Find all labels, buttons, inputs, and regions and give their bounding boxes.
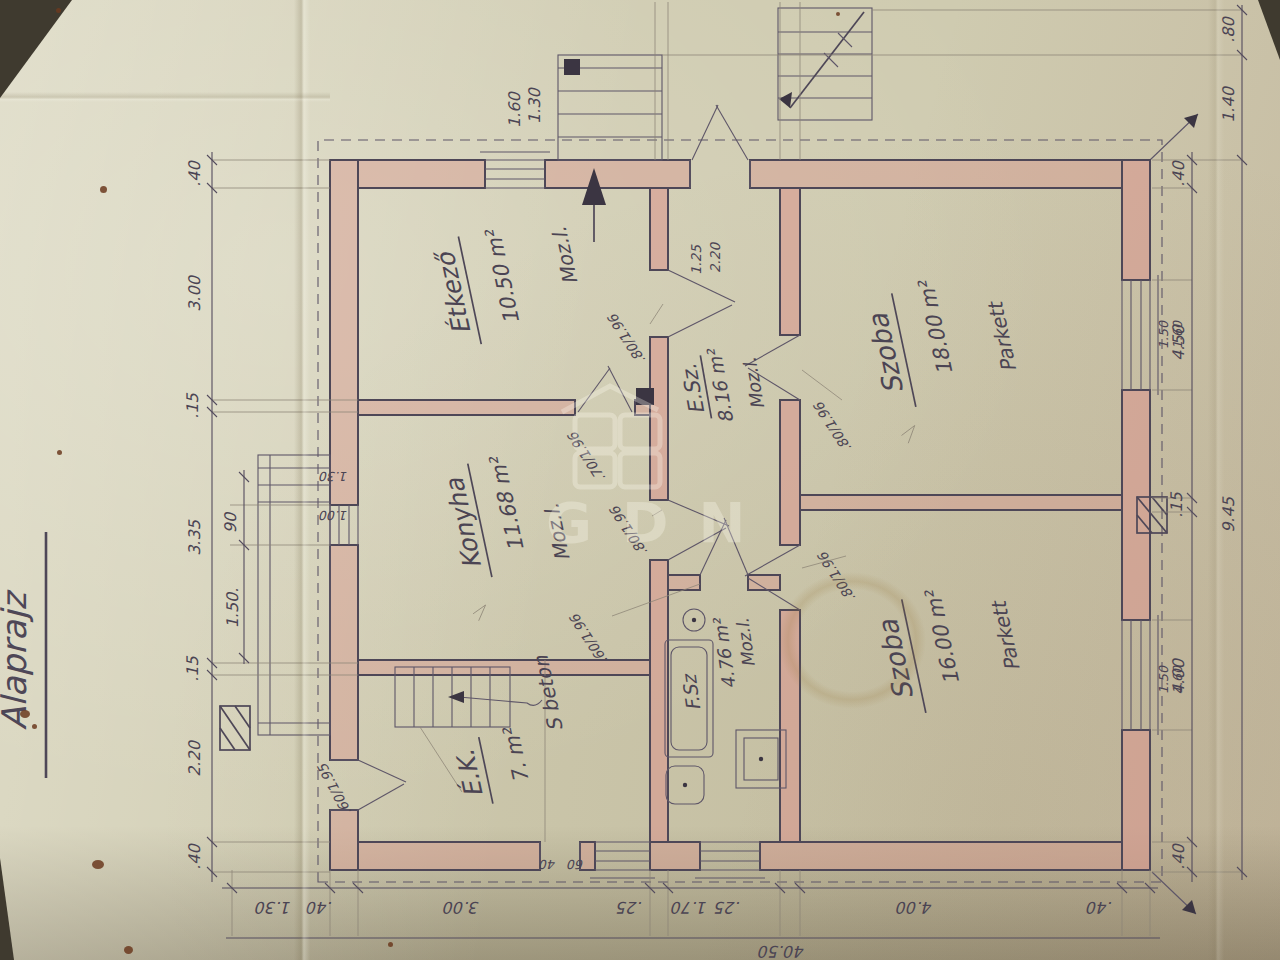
dim-label: 3.35 [185,519,204,555]
sheet-title: Alaprajz [0,532,46,778]
room-floor: Parkett [983,297,1022,374]
entry-steps-upper [558,55,662,242]
dim-label: 1.40 [1219,85,1238,122]
door-size: .80/1.96 [606,502,651,559]
room-name: Szoba [872,615,920,703]
room-area: 16.00 m² [920,586,964,687]
room-label-konyha: Konyha 11.68 m² Moz.l. [437,444,583,623]
page-title: Alaprajz [0,589,34,730]
room-label-szoba16: Szoba 16.00 m² Parkett [868,573,1030,720]
dim-bottom: .40 4.00 .15 4.50 .40 9.45 1.40 .80 1.50… [1156,5,1247,882]
dim-label: 4.00 [895,898,932,917]
vent-dim: 40 [539,857,556,872]
room-floor: Moz.l. [739,356,769,411]
room-label-etkezo: Étkező 10.50 m² Moz.l. [427,212,591,351]
room-floor: Moz.l. [539,502,575,564]
stain-speck [124,946,133,954]
room-name: Szoba [862,309,910,397]
room-label-fsz: F.Sz 4.76 m² Moz.l. [670,612,764,713]
dim-total-label: 40.50 [757,942,805,960]
room-area: 11.68 m² [485,453,529,554]
window-dim: 1.50 [1156,665,1171,694]
dim-label: 1.50. [223,588,242,629]
stain-speck [388,942,393,947]
room-area: 18.00 m² [914,276,958,377]
vent-dim: 60 [567,857,584,872]
stain-speck [32,724,37,729]
dim-label: .40 [305,898,332,917]
dim-label: 2.20 [185,739,204,776]
stain-speck [100,186,107,193]
room-floor: Moz.l. [547,225,583,287]
room-area: 7. m² [498,723,534,785]
dim-label: 1.30 [254,898,291,917]
dim-label: .25 [616,898,642,917]
dim-label: .15 [183,392,202,418]
dim-label: .40 [185,159,204,186]
window-dim: 1.60 [1170,665,1185,694]
window-dim: 1.50 [1156,320,1171,349]
door-size: .80/1.96 [604,310,649,367]
stain-speck [20,710,30,718]
terrace-dim: 1.00 [319,508,348,523]
dim-label: 1.70 [670,898,707,917]
dim-label: 3.00 [185,274,204,311]
stain-speck [836,12,840,16]
door-size: .80/1.96 [810,398,855,455]
dim-total-label: 9.45 [1219,496,1238,532]
dim-label: .25 [714,898,740,917]
steps-dim: 1.60 [505,91,524,128]
room-name: E.Sz. [677,362,709,416]
blueprint-photo: .40 2.20 .15 3.35 .15 3.00 .40 1.50. 90 … [0,0,1280,960]
door-size: .60/1.96 [566,610,611,667]
dim-label: .15 [1167,491,1186,517]
floor-plan-svg: .40 2.20 .15 3.35 .15 3.00 .40 1.50. 90 … [0,0,1280,960]
extension-lines [212,10,1242,936]
room-label-esz: E.Sz. 8.16 m² Moz.l. [675,340,770,430]
dim-label: .40 [1085,898,1112,917]
stain-speck [56,8,61,13]
dim-label: .40 [1169,842,1188,869]
steps-dim: 1.30 [525,87,544,124]
entry-door-size: 2.20 [707,242,723,273]
dim-label: 90 [221,511,240,533]
terrace-pillar [220,706,250,750]
dim-label: .40 [1169,159,1188,186]
door-symbols [330,105,800,810]
dim-label: .40 [185,842,204,869]
dim-label: .80 [1219,15,1238,42]
room-label-szoba18: Szoba 18.00 m² Parkett [857,263,1032,447]
room-area: 10.50 m² [481,225,525,326]
dim-label: .15 [183,655,202,681]
door-size: .70/1.96 [564,428,609,485]
room-label-ek: É.K. 7. m² S beton [433,652,580,810]
boiler [736,730,786,788]
dim-left: 1.30 .40 3.00 .25 1.70 .25 4.00 .40 40.5… [222,883,1160,960]
window-dim: 1.60 [1170,320,1185,349]
room-name: F.Sz [677,672,704,713]
dim-top: .40 2.20 .15 3.35 .15 3.00 .40 1.50. 90 [183,152,249,882]
stain-speck [57,450,62,455]
entry-steps-lower [778,8,872,120]
room-floor: Moz.l. [732,617,759,669]
terrace-dim: 1.30 [319,469,348,484]
door-size: .80/1.96 [814,548,859,605]
stain-speck [92,860,104,869]
room-floor: Parkett [986,597,1025,674]
entry-door-size: 1.25 [688,244,704,275]
chimney-section [636,388,654,405]
dim-label: 3.00 [442,898,479,917]
